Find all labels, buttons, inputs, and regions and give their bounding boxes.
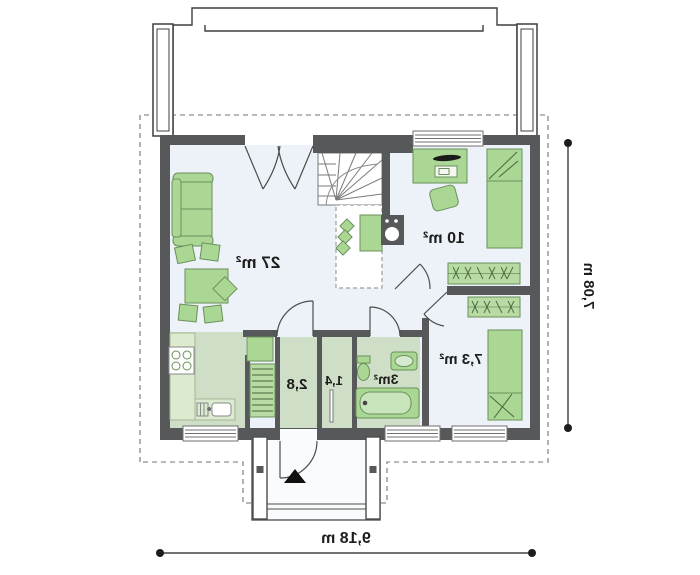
window-bedroom-small [452, 426, 507, 441]
cooktop [169, 347, 194, 374]
hall-area-label: 2,8 [287, 376, 308, 393]
annex-counter [360, 215, 382, 251]
terrace-parapet-outer [173, 8, 517, 25]
wall-right [530, 135, 540, 440]
window-bath-side [385, 426, 440, 441]
bathtub [356, 388, 419, 418]
wall-closet-hall [275, 337, 280, 428]
terrace [173, 8, 517, 135]
pillar-right-inner [521, 29, 533, 131]
window-bedroom-top [413, 131, 483, 146]
floor-plan-canvas: 27 m² 10 m² 7,3 m² 3m² 2,8 1,4 9,18 m 7,… [0, 0, 700, 575]
porch-slab [252, 433, 380, 520]
porch-column-right [366, 437, 380, 519]
wall-stairs-bedroom [382, 153, 390, 215]
terrace-pillars [153, 24, 537, 136]
porch-column-left-core [257, 466, 264, 473]
wall-top-left [160, 135, 245, 145]
bed-large [487, 149, 522, 248]
wall-hall-c [400, 330, 425, 337]
terrace-parapet-inner [205, 25, 483, 31]
pantry-closet [250, 364, 275, 417]
entrance-porch [252, 433, 380, 520]
fridge [247, 337, 273, 361]
wall-kitchen-closet [245, 355, 250, 428]
porch-column-right-core [370, 466, 377, 473]
wall-bedrooms-divider [447, 286, 530, 295]
laptop-icon [433, 154, 461, 177]
overall-depth-dimension-label: 7,08 m [580, 263, 597, 310]
floor-plan-drawing: 27 m² 10 m² 7,3 m² 3m² 2,8 1,4 9,18 m 7,… [0, 0, 700, 575]
bedroom-small-area-label: 7,3 m² [439, 351, 482, 368]
kitchen-counter-left [170, 333, 195, 420]
porch-column-left [253, 437, 267, 519]
kitchen-annex [336, 205, 382, 288]
bathroom-sink [391, 352, 417, 370]
bedroom-large-area-label: 10 m² [423, 230, 465, 247]
bathroom-area-label: 3m² [373, 371, 398, 387]
wall-hall-b [313, 330, 370, 337]
window-kitchen [183, 426, 238, 441]
wall-left [160, 135, 170, 440]
corridor-door-leaf [330, 390, 333, 422]
wardrobe-large [448, 263, 520, 284]
corridor-area-label: 1,4 [324, 373, 343, 388]
entrance-door-gap [280, 429, 317, 440]
toilet [357, 356, 370, 381]
living-room-area-label: 27 m² [235, 253, 280, 272]
pillar-left-inner [157, 29, 169, 131]
wall-hall-a [243, 330, 277, 337]
staircase [318, 153, 382, 205]
wall-hall-corridor [317, 337, 322, 428]
wall-top-center [313, 135, 413, 153]
dimension-bottom [156, 549, 536, 557]
sofa [172, 173, 213, 246]
bed-small [488, 330, 522, 420]
wardrobe-small [468, 297, 520, 317]
dimension-right [564, 139, 572, 432]
overall-width-dimension-label: 9,18 m [321, 530, 371, 547]
